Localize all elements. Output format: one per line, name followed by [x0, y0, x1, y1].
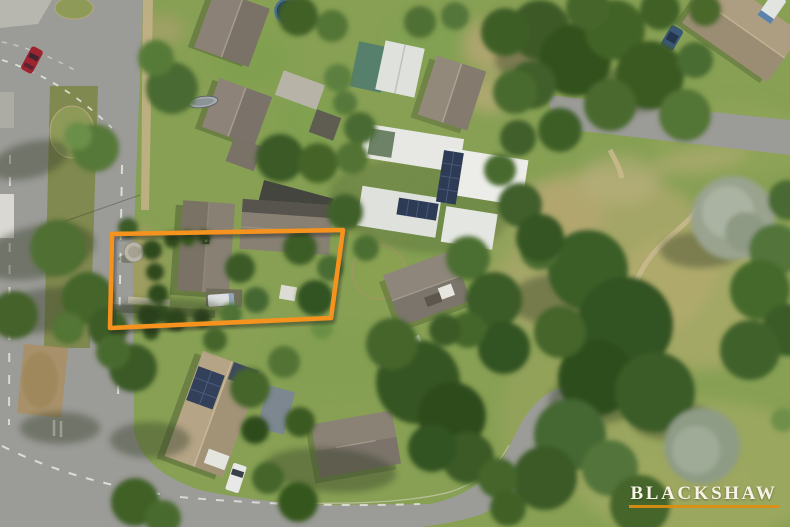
watermark: BLACKSHAW: [629, 484, 779, 508]
watermark-brand-text: BLACKSHAW: [629, 484, 779, 504]
aerial-scene: [0, 0, 790, 527]
aerial-photo: BLACKSHAW: [0, 0, 790, 527]
median-tip: [0, 92, 14, 128]
watermark-underline: [629, 505, 779, 508]
garden-shed-white: [279, 285, 297, 302]
house-left-edge: [0, 194, 14, 238]
traffic-island: [55, 0, 93, 19]
silver-gum-bottom-right: [664, 408, 740, 484]
property-house: [170, 200, 235, 299]
